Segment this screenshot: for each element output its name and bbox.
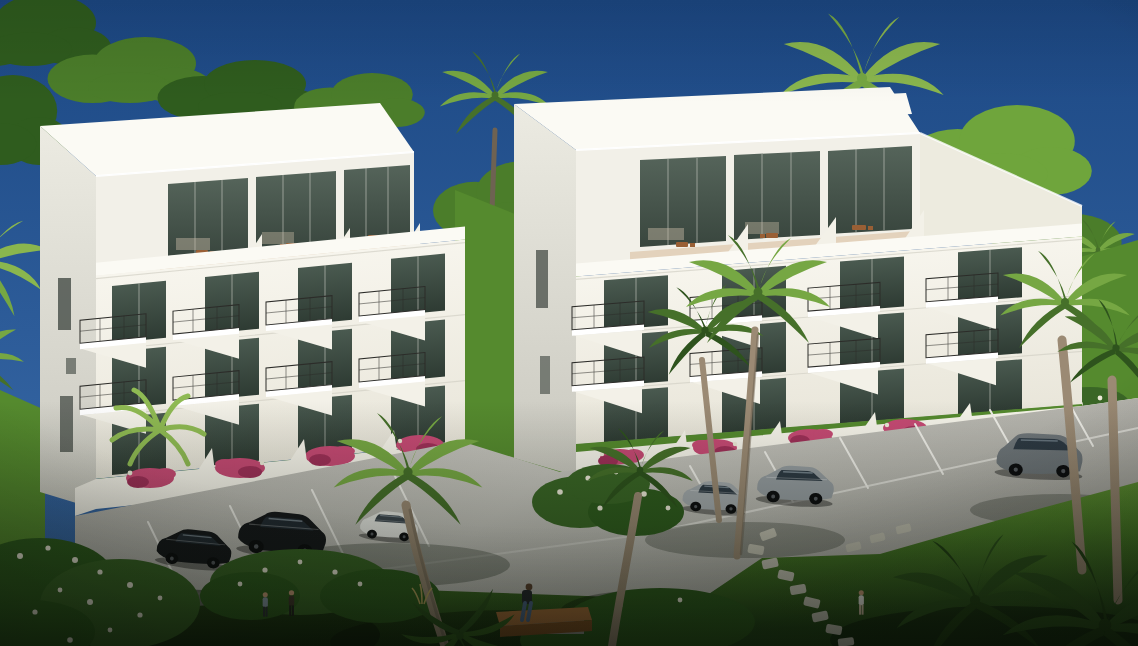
palm-shadow-on-asphalt	[645, 522, 845, 558]
right-building-roof-parapet	[826, 93, 912, 118]
architectural-rendering	[0, 0, 1138, 646]
scene-canvas	[0, 0, 1138, 646]
